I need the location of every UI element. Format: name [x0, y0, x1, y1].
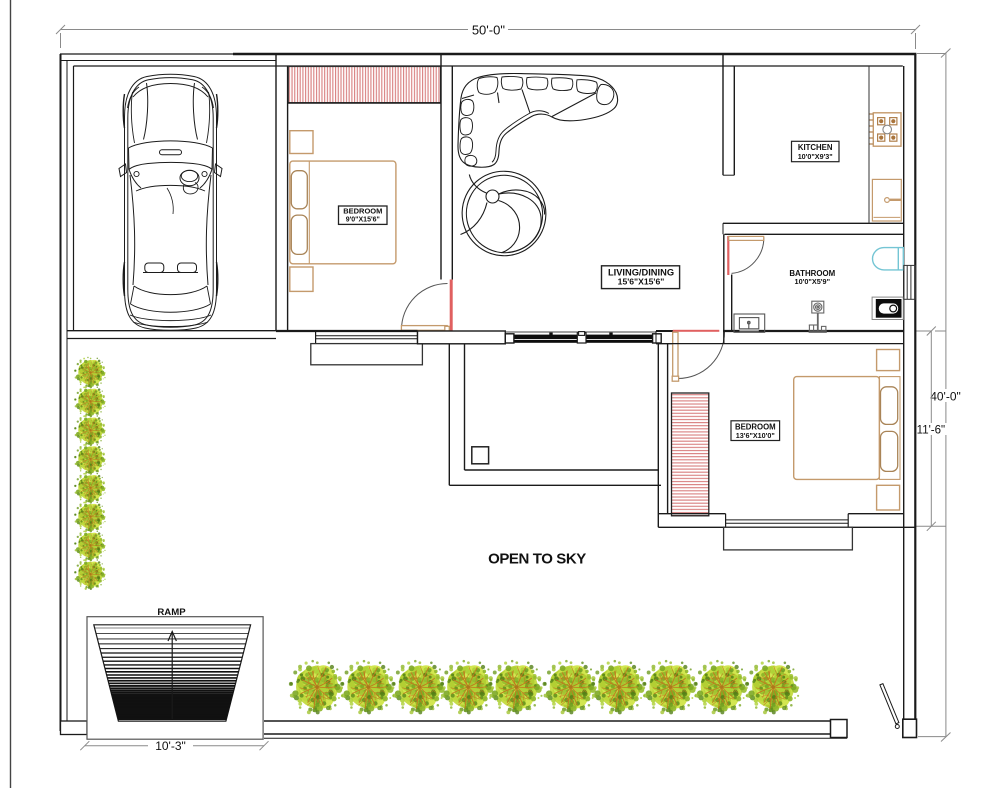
svg-text:BEDROOM: BEDROOM — [343, 206, 382, 215]
svg-text:10'0"X9'3": 10'0"X9'3" — [798, 152, 833, 161]
svg-text:15'6"X15'6": 15'6"X15'6" — [618, 277, 665, 287]
svg-text:BEDROOM: BEDROOM — [735, 422, 776, 431]
svg-text:40'-0": 40'-0" — [930, 389, 961, 403]
svg-text:50'-0": 50'-0" — [472, 23, 506, 38]
svg-text:9'0"X15'6": 9'0"X15'6" — [346, 216, 380, 223]
svg-text:11'-6": 11'-6" — [917, 424, 945, 436]
svg-text:10'-3": 10'-3" — [155, 739, 186, 753]
svg-text:OPEN TO SKY: OPEN TO SKY — [488, 551, 586, 568]
svg-text:13'6"X10'0": 13'6"X10'0" — [736, 431, 775, 440]
svg-text:RAMP: RAMP — [157, 607, 186, 618]
svg-text:KITCHEN: KITCHEN — [798, 143, 833, 152]
svg-text:10'0"X5'9": 10'0"X5'9" — [795, 277, 831, 286]
